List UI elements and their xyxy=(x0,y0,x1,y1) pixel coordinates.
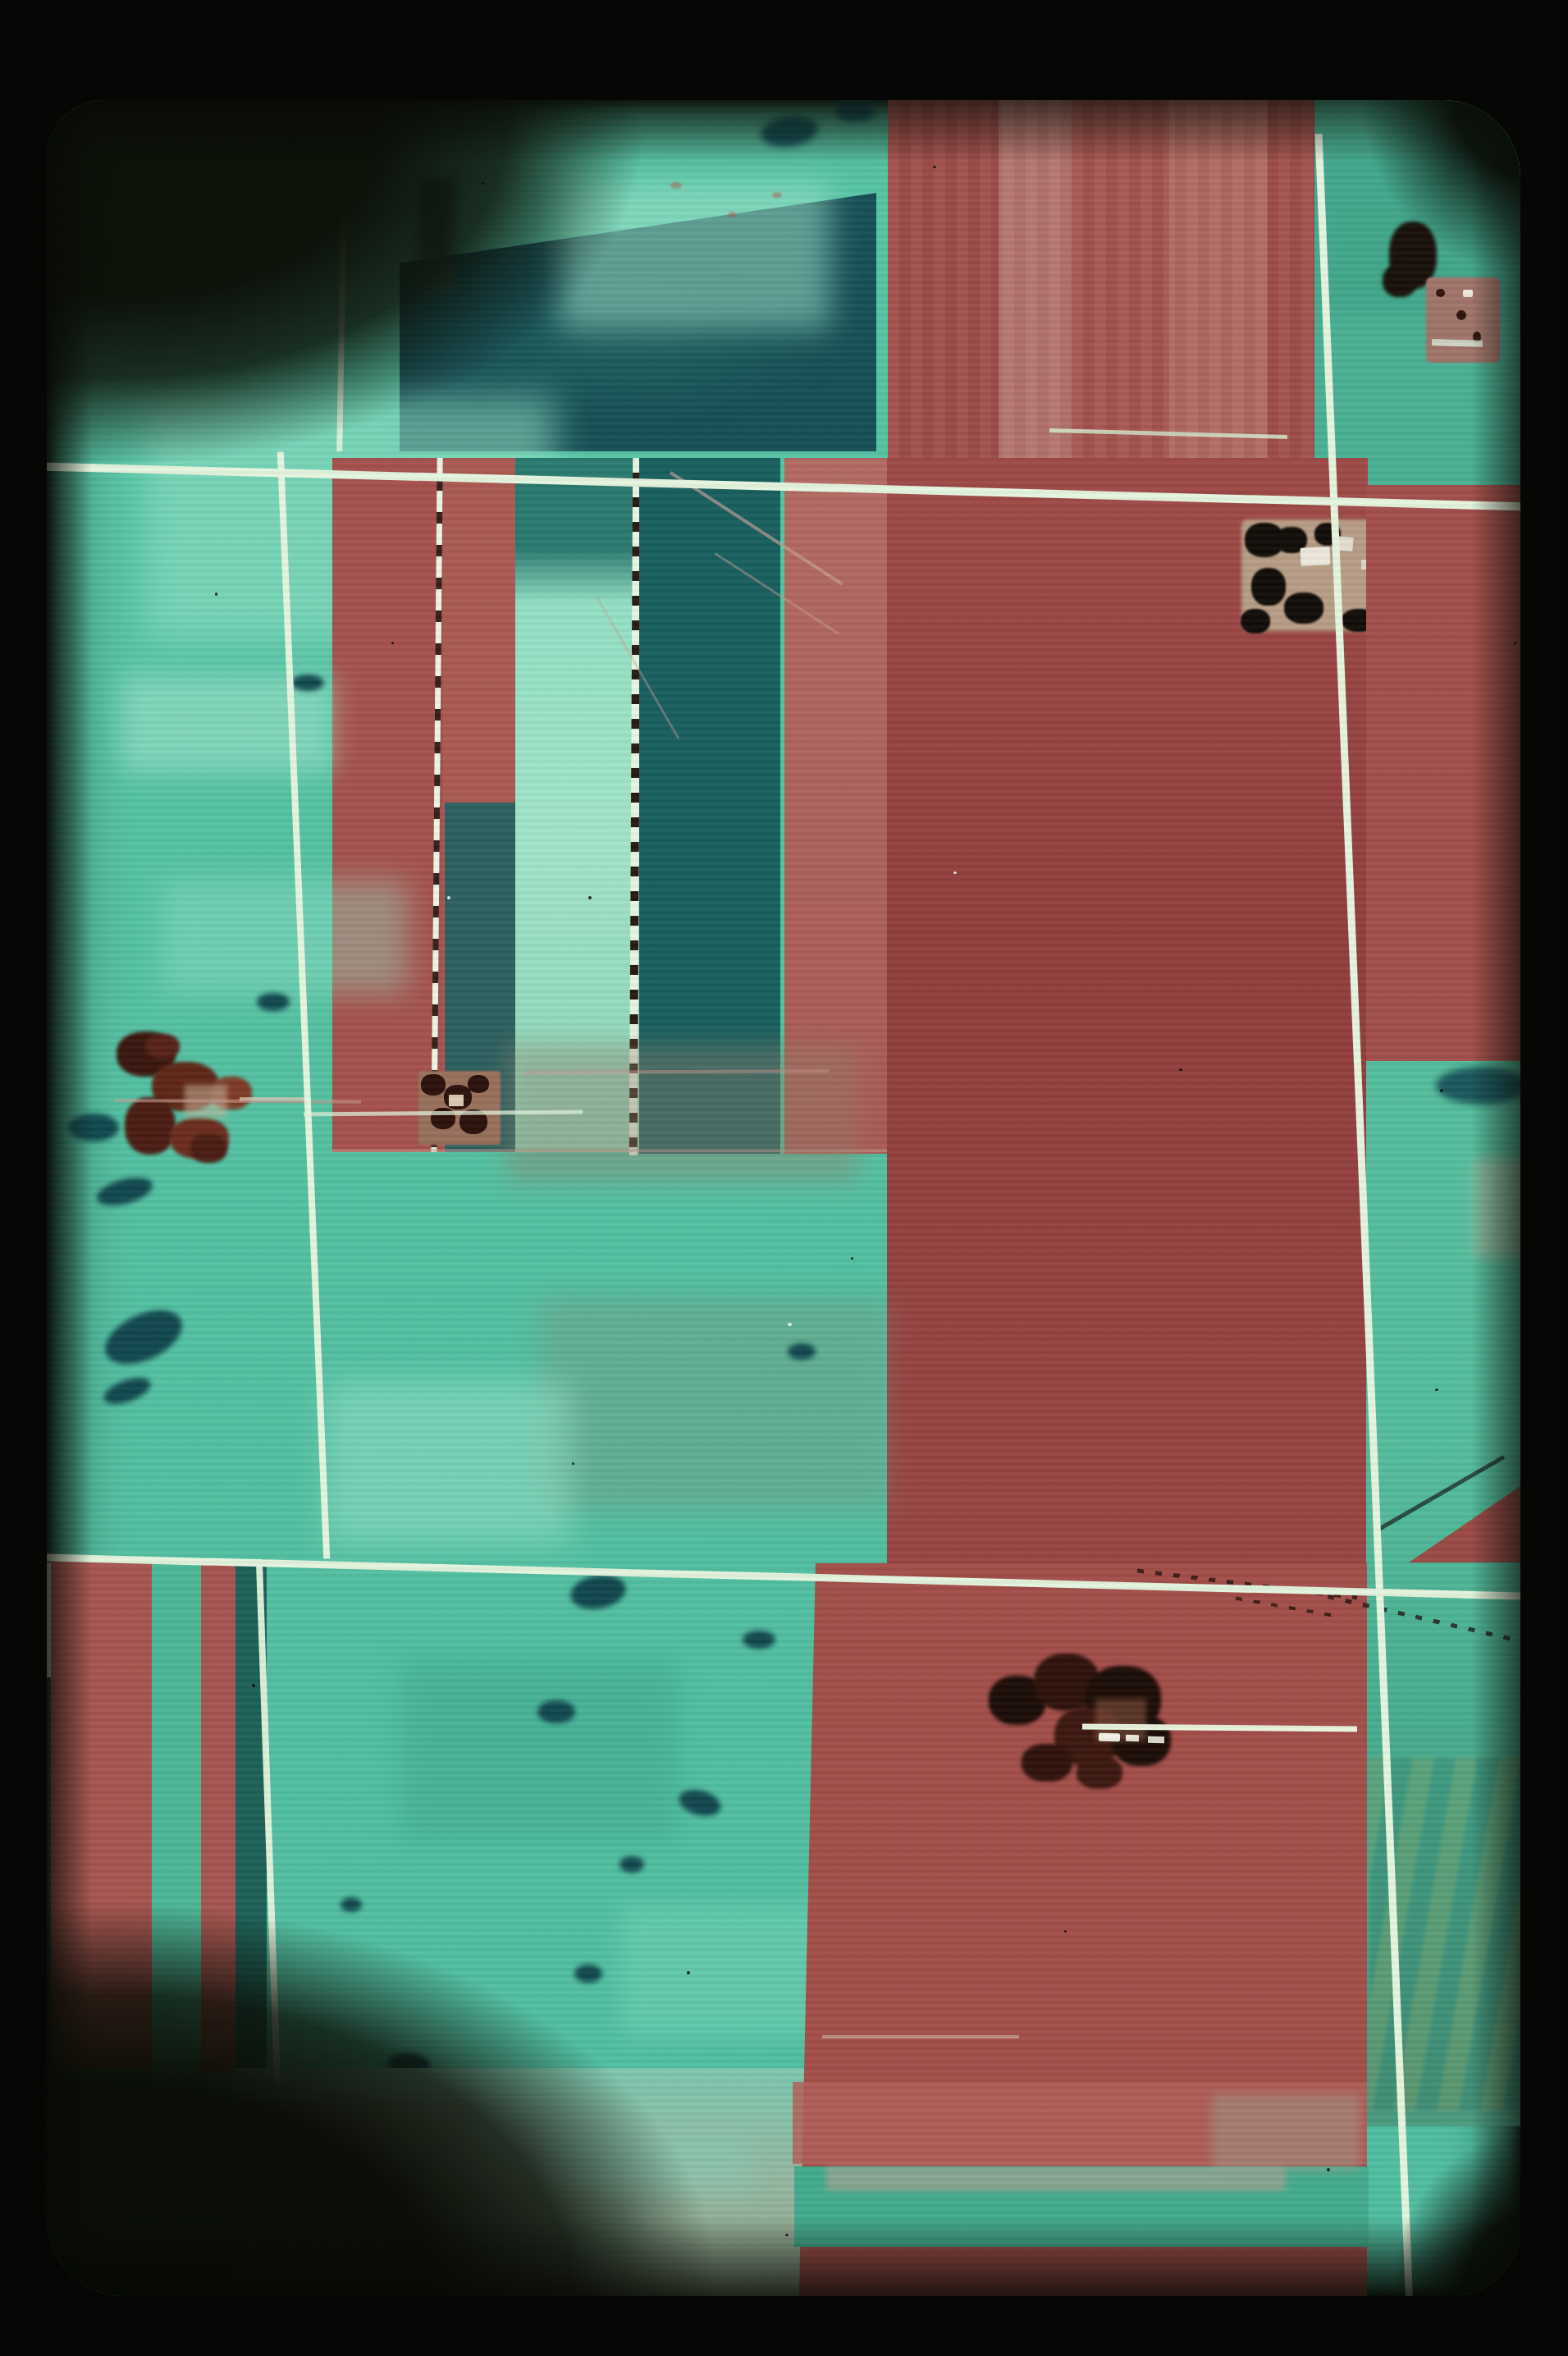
vignette-right-edge xyxy=(1471,100,1520,2296)
dust-speck xyxy=(1440,1089,1443,1092)
dust-speck xyxy=(1435,1388,1438,1391)
dust-speck-white xyxy=(788,1323,792,1326)
vignette-left-edge xyxy=(47,100,92,2296)
photo-area xyxy=(47,100,1520,2296)
dust-speck xyxy=(588,896,592,899)
vignette-top-left xyxy=(47,100,982,757)
dust-speck xyxy=(1179,1068,1182,1071)
dust-speck xyxy=(572,1462,574,1465)
dust-speck-white xyxy=(953,871,957,874)
vignette-bottom-edge xyxy=(47,2217,1520,2296)
dust-speck xyxy=(851,1257,853,1260)
vignette-bottom-left xyxy=(47,1643,1081,2296)
dust-speck-white xyxy=(447,896,450,899)
slide-frame xyxy=(0,0,1568,2356)
